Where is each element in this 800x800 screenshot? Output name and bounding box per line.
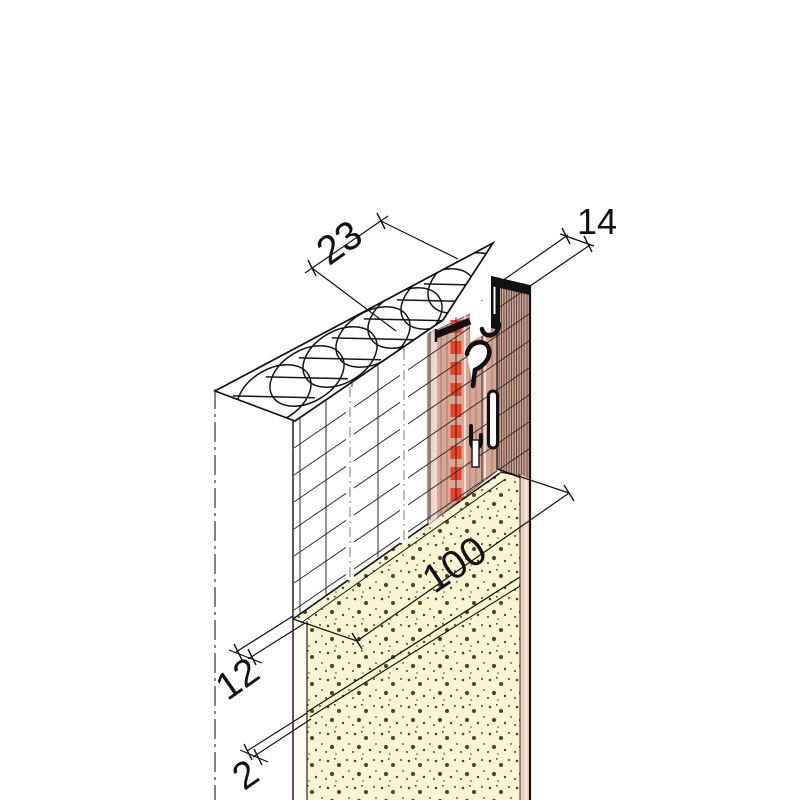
perforation-slot-small xyxy=(472,440,479,467)
wall-profile-detail-drawing: 23 14 100 12 2 xyxy=(0,0,800,800)
label-base-coat: 12 xyxy=(209,650,268,709)
perforation-slot xyxy=(489,391,498,448)
technical-drawing-canvas: 23 14 100 12 2 xyxy=(0,0,800,800)
label-profile-face-width: 14 xyxy=(577,201,617,242)
